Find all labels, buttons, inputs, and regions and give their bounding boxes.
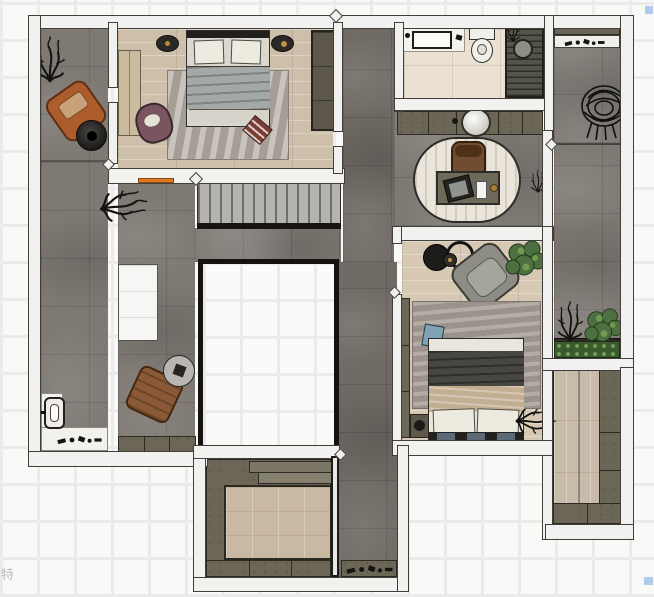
- bench-cushion: [437, 433, 455, 440]
- divider: [498, 112, 499, 134]
- speaker: [414, 420, 425, 431]
- selection-handle: [644, 577, 653, 585]
- wall-mid-vertical-a: [333, 22, 343, 132]
- double-bed-2: [428, 338, 524, 440]
- duvet-dark: [429, 351, 524, 388]
- selection-handle: [645, 6, 653, 14]
- watermark: 特: [1, 564, 14, 583]
- divider: [428, 112, 429, 134]
- divider: [522, 112, 523, 134]
- wall-bath-east: [544, 15, 554, 143]
- shower-drain: [513, 39, 533, 59]
- sliding-door-track-orange: [138, 178, 174, 183]
- divider: [249, 561, 250, 576]
- console-decor: [344, 562, 396, 577]
- divider: [600, 432, 620, 433]
- closet-plank-seam: [578, 369, 580, 503]
- bench-cushion: [497, 433, 515, 440]
- wall-tatami-corridor-divider: [331, 456, 339, 577]
- decor-gold: [165, 41, 170, 46]
- wall-top: [28, 15, 628, 29]
- laptop-screen: [449, 180, 469, 198]
- wood-platform: [224, 485, 332, 560]
- divider: [169, 437, 170, 451]
- wall-bath-south: [394, 98, 552, 111]
- planter-green-plant: [583, 304, 625, 348]
- wall-bedroom2-east: [542, 226, 553, 540]
- void-top-strip-floor: [195, 228, 341, 262]
- faucet: [405, 33, 410, 38]
- side-table-round: [163, 355, 195, 387]
- wall-tatami-north: [193, 445, 340, 459]
- toilet-bowl: [471, 38, 493, 63]
- vanity-sink: [412, 31, 452, 49]
- nightstand-2: [410, 414, 429, 438]
- small-table: [443, 253, 457, 267]
- wall-bottom-mid: [193, 577, 409, 592]
- duvet: [187, 66, 270, 109]
- wall-balcony-divider-a: [108, 22, 118, 88]
- headboard: [187, 31, 269, 38]
- wall-bedroom2-west-a: [392, 226, 402, 244]
- divider: [144, 437, 145, 451]
- decor: [172, 363, 186, 377]
- wall-bedroom2-north: [392, 226, 554, 241]
- wall-balcony-divider-b: [108, 102, 118, 164]
- laptop: [443, 174, 475, 203]
- balcony-shelf: [554, 35, 620, 48]
- closet-cabinet-column: [599, 369, 621, 505]
- tap-inner: [50, 404, 59, 422]
- shelf-items: [557, 36, 613, 49]
- balcony-floor-seam: [41, 160, 108, 162]
- wall-closet-east: [620, 367, 634, 540]
- chair-back: [455, 145, 482, 157]
- landing-north-floor: [343, 29, 394, 262]
- cushion: [57, 90, 90, 121]
- garden-tap: [44, 397, 65, 429]
- console-basin: [461, 108, 491, 137]
- desk: [436, 171, 500, 205]
- corridor-floor: [338, 262, 397, 577]
- divider: [291, 561, 292, 576]
- side-table-black: [76, 120, 107, 151]
- decor-gold: [281, 41, 287, 47]
- planter-box-left: [118, 436, 196, 452]
- wall-bedroom2-south: [392, 440, 553, 456]
- wall-mid-vertical-b: [333, 146, 343, 174]
- cushion: [141, 111, 162, 130]
- nightstand-right: [271, 35, 294, 52]
- soap: [455, 34, 462, 40]
- cup: [490, 184, 498, 192]
- wall-tatami-west: [193, 445, 206, 592]
- closet-cabinet-bottom: [553, 503, 621, 524]
- bench-cushion: [467, 433, 485, 440]
- decor: [87, 131, 97, 141]
- wardrobe-divider: [129, 51, 130, 135]
- phone: [476, 181, 487, 199]
- double-bed-master: [186, 30, 270, 127]
- stairs: [197, 183, 341, 224]
- floor-void: [198, 259, 339, 450]
- divider: [600, 470, 620, 471]
- planter-dark-plant: [556, 300, 584, 342]
- pillow-left: [194, 39, 225, 64]
- decor-gold: [448, 258, 452, 262]
- tatami-step-2: [258, 472, 332, 484]
- wall-closet-south: [545, 524, 634, 540]
- decor-scribbles: [56, 430, 104, 450]
- wall-corridor-east: [397, 445, 409, 592]
- pillow-right: [231, 39, 262, 64]
- nightstand-left: [156, 35, 179, 52]
- wall-left: [28, 15, 41, 467]
- vanity-counter: [404, 29, 465, 52]
- bowl-inner: [477, 44, 487, 55]
- wall-bottom-left: [28, 451, 208, 467]
- wall-bedroom2-west-b: [392, 294, 402, 456]
- tatami-bottom-row: [206, 560, 331, 577]
- skylight-small: [118, 264, 158, 341]
- wall-right-outer: [620, 15, 634, 367]
- floor-plan-canvas: 特: [0, 0, 654, 597]
- entry-console: [341, 560, 397, 577]
- basin-tap: [452, 118, 458, 124]
- divider: [587, 504, 588, 523]
